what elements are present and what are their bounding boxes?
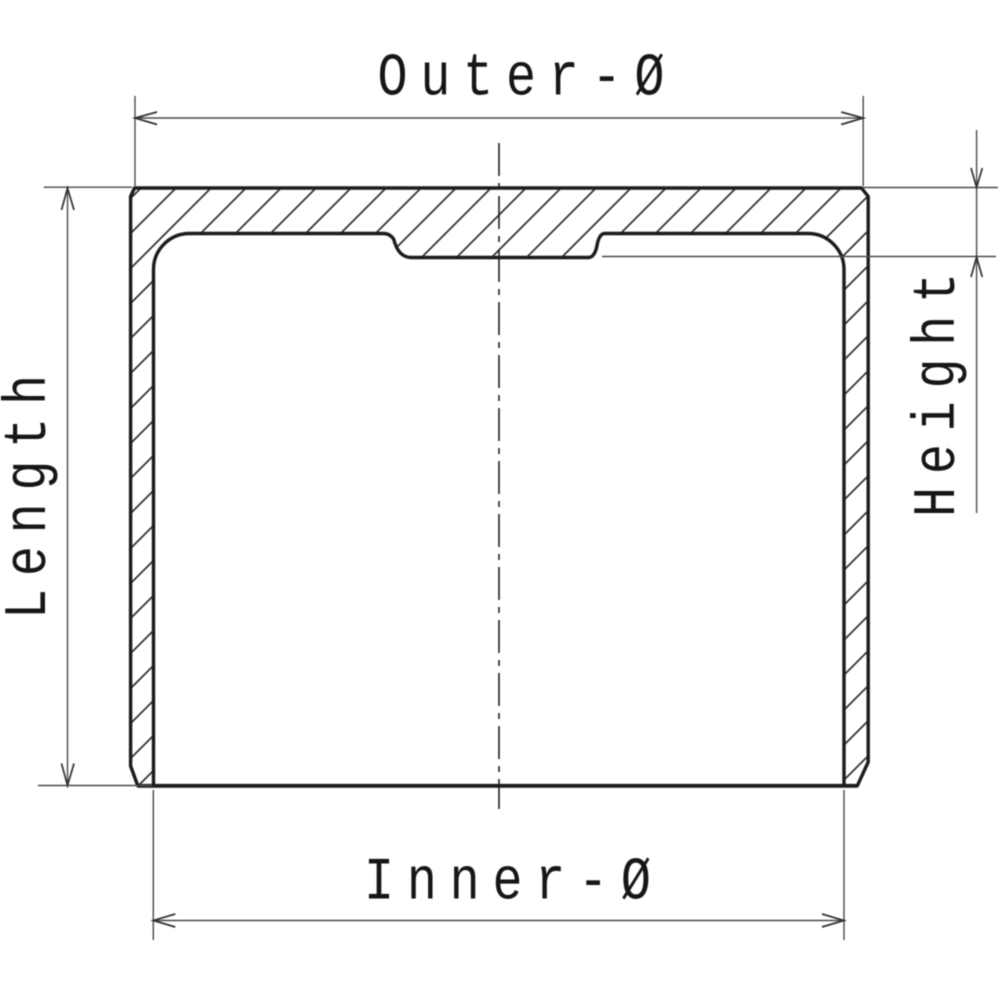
svg-text:Outer-Ø: Outer-Ø — [378, 44, 678, 113]
svg-text:Height: Height — [904, 260, 973, 517]
svg-text:Length: Length — [0, 362, 63, 619]
svg-text:Inner-Ø: Inner-Ø — [364, 848, 664, 917]
